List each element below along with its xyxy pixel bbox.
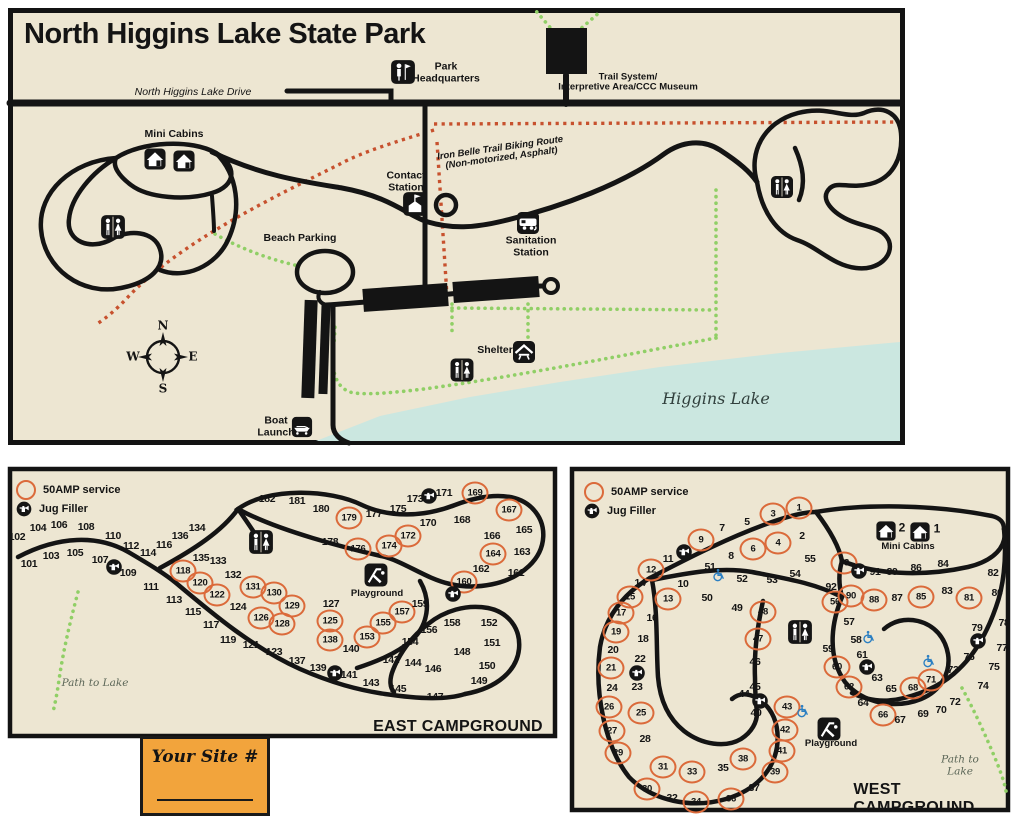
campsite-38: 38 bbox=[730, 748, 757, 771]
site-number-blank-line bbox=[157, 799, 253, 801]
campsite-123: 123 bbox=[266, 646, 283, 658]
cabin-icon bbox=[910, 522, 931, 543]
campsite-65: 65 bbox=[885, 683, 896, 695]
cabin-icon bbox=[144, 148, 167, 171]
campsite-163: 163 bbox=[514, 546, 531, 558]
campsite-165: 165 bbox=[516, 524, 533, 536]
campsite-11: 11 bbox=[663, 553, 674, 565]
50amp-ring-icon bbox=[584, 482, 604, 502]
campsite-119: 119 bbox=[220, 634, 236, 646]
campsite-86: 86 bbox=[910, 562, 921, 574]
campsite-81: 81 bbox=[956, 587, 983, 610]
map-label: Trail System/ Interpretive Area/CCC Muse… bbox=[558, 73, 698, 94]
legend-jug-row: Jug Filler bbox=[584, 501, 688, 520]
sanitation-icon bbox=[516, 211, 540, 235]
map-label: Path to Lake bbox=[928, 754, 992, 777]
campsite-152: 152 bbox=[481, 617, 498, 629]
campsite-111: 111 bbox=[143, 581, 158, 593]
campsite-176: 176 bbox=[345, 538, 372, 561]
campsite-73: 73 bbox=[947, 664, 958, 676]
campsite-150: 150 bbox=[479, 660, 496, 672]
campsite-137: 137 bbox=[289, 655, 306, 667]
campsite-169: 169 bbox=[462, 482, 489, 505]
campsite-37: 37 bbox=[748, 782, 759, 794]
restroom-icon bbox=[770, 175, 794, 199]
campsite-1: 1 bbox=[786, 497, 813, 520]
legend-50amp-row: 50AMP service bbox=[584, 482, 688, 501]
campsite-151: 151 bbox=[484, 637, 501, 649]
boat-icon bbox=[291, 416, 313, 438]
jug-icon bbox=[445, 586, 462, 603]
east-campground-name: EAST CAMPGROUND bbox=[373, 718, 543, 736]
campsite-46: 46 bbox=[749, 656, 760, 668]
campsite-149: 149 bbox=[471, 675, 488, 687]
campsite-4: 4 bbox=[765, 532, 792, 555]
jug-icon bbox=[970, 633, 987, 650]
jug-filler-icon bbox=[584, 503, 600, 519]
campsite-168: 168 bbox=[454, 514, 471, 526]
campsite-28: 28 bbox=[639, 733, 650, 745]
campsite-58: 58 bbox=[850, 634, 861, 646]
campsite-178: 178 bbox=[322, 536, 339, 548]
east-legend: 50AMP service Jug Filler bbox=[16, 480, 120, 518]
campsite-131: 131 bbox=[240, 576, 267, 599]
restroom-icon bbox=[248, 529, 274, 555]
map-label: Mini Cabins bbox=[145, 129, 204, 141]
campsite-132: 132 bbox=[225, 569, 242, 581]
campsite-3: 3 bbox=[760, 503, 787, 526]
your-site-number-box: Your Site # bbox=[140, 736, 270, 816]
map-label: N bbox=[158, 319, 169, 332]
jug-icon bbox=[629, 665, 646, 682]
restroom-icon bbox=[787, 619, 813, 645]
wheelchair-icon bbox=[712, 568, 727, 583]
campsite-89: 89 bbox=[886, 566, 897, 578]
campsite-74: 74 bbox=[977, 680, 988, 692]
campsite-112: 112 bbox=[123, 540, 139, 552]
legend-jug-label: Jug Filler bbox=[39, 503, 88, 515]
map-label: S bbox=[159, 382, 168, 395]
jug-icon bbox=[851, 563, 868, 580]
map-label: Path to Lake bbox=[62, 678, 129, 690]
campsite-175: 175 bbox=[390, 503, 407, 515]
campsite-76: 76 bbox=[963, 651, 974, 663]
campsite-115: 115 bbox=[185, 606, 201, 618]
map-label: Beach Parking bbox=[264, 233, 337, 245]
contact-icon bbox=[402, 191, 428, 217]
campsite-59: 59 bbox=[822, 643, 833, 655]
jug-icon bbox=[327, 665, 344, 682]
campsite-53: 53 bbox=[766, 574, 777, 586]
your-site-label: Your Site # bbox=[143, 747, 267, 767]
map-label: North Higgins Lake Drive bbox=[135, 87, 252, 99]
campsite-64: 64 bbox=[857, 697, 868, 709]
map-label: Mini Cabins bbox=[881, 542, 934, 552]
campsite-167: 167 bbox=[496, 499, 523, 522]
campsite-170: 170 bbox=[420, 517, 437, 529]
campsite-92: 92 bbox=[825, 581, 836, 593]
campsite-164: 164 bbox=[480, 543, 507, 566]
campsite-8: 8 bbox=[728, 550, 734, 562]
campsite-72: 72 bbox=[949, 696, 960, 708]
campsite-124: 124 bbox=[230, 601, 247, 613]
campsite-159: 159 bbox=[412, 598, 429, 610]
playground-icon bbox=[817, 717, 842, 742]
campsite-171: 171 bbox=[436, 487, 453, 499]
campsite-77: 77 bbox=[996, 642, 1007, 654]
campsite-142: 142 bbox=[383, 654, 400, 666]
map-label: Iron Belle Trail Biking Route (Non-motor… bbox=[437, 135, 566, 173]
campsite-121: 121 bbox=[243, 639, 260, 651]
campsite-35: 35 bbox=[717, 762, 728, 774]
playground-icon bbox=[364, 563, 389, 588]
campsite-78: 78 bbox=[998, 617, 1009, 629]
restroom-icon bbox=[100, 214, 126, 240]
campsite-50: 50 bbox=[701, 592, 712, 604]
jug-icon bbox=[421, 488, 438, 505]
west-campground-name: WEST CAMPGROUND bbox=[853, 781, 974, 817]
campsite-166: 166 bbox=[484, 530, 501, 542]
map-label: Higgins Lake bbox=[662, 390, 770, 408]
campsite-32: 32 bbox=[666, 792, 677, 804]
legend-jug-label: Jug Filler bbox=[607, 505, 656, 517]
map-label: E bbox=[188, 350, 197, 363]
campsite-10: 10 bbox=[677, 578, 688, 590]
campsite-33: 33 bbox=[679, 761, 706, 784]
campsite-162: 162 bbox=[473, 563, 490, 575]
campsite-114: 114 bbox=[140, 547, 156, 559]
map-label: 2 bbox=[899, 521, 906, 534]
campsite-88: 88 bbox=[861, 589, 888, 612]
campsite-7: 7 bbox=[719, 522, 725, 534]
campsite-36: 36 bbox=[718, 788, 745, 811]
campsite-57: 57 bbox=[843, 616, 854, 628]
campsite-177: 177 bbox=[366, 508, 383, 520]
campsite-25: 25 bbox=[628, 702, 655, 725]
campsite-70: 70 bbox=[935, 704, 946, 716]
campsite-67: 67 bbox=[894, 714, 905, 726]
restroom-icon bbox=[450, 358, 475, 383]
legend-50amp-label: 50AMP service bbox=[611, 486, 688, 498]
hq-icon bbox=[390, 59, 416, 85]
campsite-180: 180 bbox=[313, 503, 330, 515]
cabin-icon bbox=[876, 521, 897, 542]
campsite-75: 75 bbox=[988, 661, 999, 673]
campsite-139: 139 bbox=[310, 662, 327, 674]
campsite-146: 146 bbox=[425, 663, 442, 675]
jug-icon bbox=[676, 544, 693, 561]
campsite-127: 127 bbox=[323, 598, 340, 610]
campsite-55: 55 bbox=[804, 553, 815, 565]
campsite-158: 158 bbox=[444, 617, 461, 629]
campsite-154: 154 bbox=[402, 636, 419, 648]
campsite-27: 27 bbox=[599, 720, 626, 743]
campsite-21: 21 bbox=[598, 657, 625, 680]
campsite-2: 2 bbox=[799, 530, 805, 542]
campsite-66: 66 bbox=[870, 704, 897, 727]
park-title: North Higgins Lake State Park bbox=[24, 18, 425, 51]
campsite-29: 29 bbox=[605, 742, 632, 765]
campsite-179: 179 bbox=[336, 507, 363, 530]
campsite-18: 18 bbox=[637, 633, 648, 645]
campsite-91: 91 bbox=[869, 566, 880, 578]
campsite-49: 49 bbox=[731, 602, 742, 614]
campsite-47: 47 bbox=[745, 628, 772, 651]
campsite-110: 110 bbox=[105, 530, 121, 542]
campsite-145: 145 bbox=[390, 683, 407, 695]
campsite-101: 101 bbox=[21, 558, 38, 570]
campsite-80: 80 bbox=[991, 587, 1002, 599]
campsite-156: 156 bbox=[421, 624, 438, 636]
map-label: Park Headquarters bbox=[412, 61, 480, 84]
map-label: Sanitation Station bbox=[506, 235, 557, 258]
campsite-133: 133 bbox=[210, 555, 227, 567]
campsite-182: 182 bbox=[259, 493, 276, 505]
jug-filler-icon bbox=[16, 501, 32, 517]
campsite-69: 69 bbox=[917, 708, 928, 720]
cabin-icon bbox=[173, 150, 196, 173]
campsite-83: 83 bbox=[941, 585, 952, 597]
jug-icon bbox=[859, 659, 876, 676]
campsite-138: 138 bbox=[317, 629, 344, 652]
map-overlay: North Higgins Lake State Park 50AMP serv… bbox=[0, 0, 1024, 819]
shelter-icon bbox=[512, 340, 536, 364]
map-label: Playground bbox=[351, 589, 403, 599]
campsite-102: 102 bbox=[9, 531, 26, 543]
wheelchair-icon bbox=[922, 654, 937, 669]
wheelchair-icon bbox=[796, 704, 811, 719]
campsite-181: 181 bbox=[289, 495, 306, 507]
campsite-103: 103 bbox=[43, 550, 60, 562]
campsite-41: 41 bbox=[769, 740, 796, 763]
campsite-174: 174 bbox=[376, 535, 403, 558]
map-label: W bbox=[126, 350, 139, 363]
campsite-23: 23 bbox=[631, 681, 642, 693]
campsite-104: 104 bbox=[30, 522, 47, 534]
campsite-117: 117 bbox=[203, 619, 219, 631]
campsite-19: 19 bbox=[603, 621, 630, 644]
campsite-161: 161 bbox=[508, 567, 525, 579]
campsite-105: 105 bbox=[67, 547, 84, 559]
campsite-147: 147 bbox=[427, 691, 444, 703]
campsite-148: 148 bbox=[454, 646, 471, 658]
campsite-52: 52 bbox=[736, 573, 747, 585]
campsite-135: 135 bbox=[193, 552, 210, 564]
campsite-106: 106 bbox=[51, 519, 68, 531]
map-label: Shelter bbox=[477, 345, 513, 357]
campsite-6: 6 bbox=[740, 538, 767, 561]
campsite-31: 31 bbox=[650, 756, 677, 779]
campsite-136: 136 bbox=[172, 530, 189, 542]
campsite-85: 85 bbox=[908, 586, 935, 609]
campsite-87: 87 bbox=[891, 592, 902, 604]
campsite-20: 20 bbox=[607, 644, 618, 656]
legend-jug-row: Jug Filler bbox=[16, 499, 120, 518]
campsite-82: 82 bbox=[987, 567, 998, 579]
campsite-22: 22 bbox=[634, 653, 645, 665]
map-label: 1 bbox=[934, 522, 941, 535]
map-label: Boat Launch bbox=[257, 415, 294, 438]
campsite-90: 90 bbox=[838, 585, 865, 608]
50amp-ring-icon bbox=[16, 480, 36, 500]
campsite-42: 42 bbox=[772, 719, 799, 742]
campsite-44: 44 bbox=[738, 688, 749, 700]
campsite-48: 48 bbox=[750, 601, 777, 624]
campsite-5: 5 bbox=[744, 516, 750, 528]
campsite-34: 34 bbox=[683, 791, 710, 814]
campsite-54: 54 bbox=[789, 568, 800, 580]
campsite-143: 143 bbox=[363, 677, 380, 689]
campsite-24: 24 bbox=[606, 682, 617, 694]
campsite-108: 108 bbox=[78, 521, 95, 533]
campsite-62: 62 bbox=[836, 676, 863, 699]
legend-50amp-label: 50AMP service bbox=[43, 484, 120, 496]
jug-icon bbox=[106, 559, 123, 576]
campsite-45: 45 bbox=[749, 681, 760, 693]
campsite-84: 84 bbox=[937, 558, 948, 570]
jug-icon bbox=[752, 693, 769, 710]
campsite-116: 116 bbox=[156, 539, 172, 551]
west-legend: 50AMP service Jug Filler bbox=[584, 482, 688, 520]
campsite-71: 71 bbox=[918, 669, 945, 692]
legend-50amp-row: 50AMP service bbox=[16, 480, 120, 499]
campsite-113: 113 bbox=[166, 594, 182, 606]
campsite-144: 144 bbox=[405, 657, 422, 669]
campsite-134: 134 bbox=[189, 522, 206, 534]
campsite-26: 26 bbox=[596, 696, 623, 719]
wheelchair-icon bbox=[862, 630, 877, 645]
campsite-122: 122 bbox=[204, 584, 231, 607]
campsite-13: 13 bbox=[655, 588, 682, 611]
campsite-16: 16 bbox=[646, 612, 657, 624]
campsite-39: 39 bbox=[762, 761, 789, 784]
campsite-30: 30 bbox=[634, 778, 661, 801]
